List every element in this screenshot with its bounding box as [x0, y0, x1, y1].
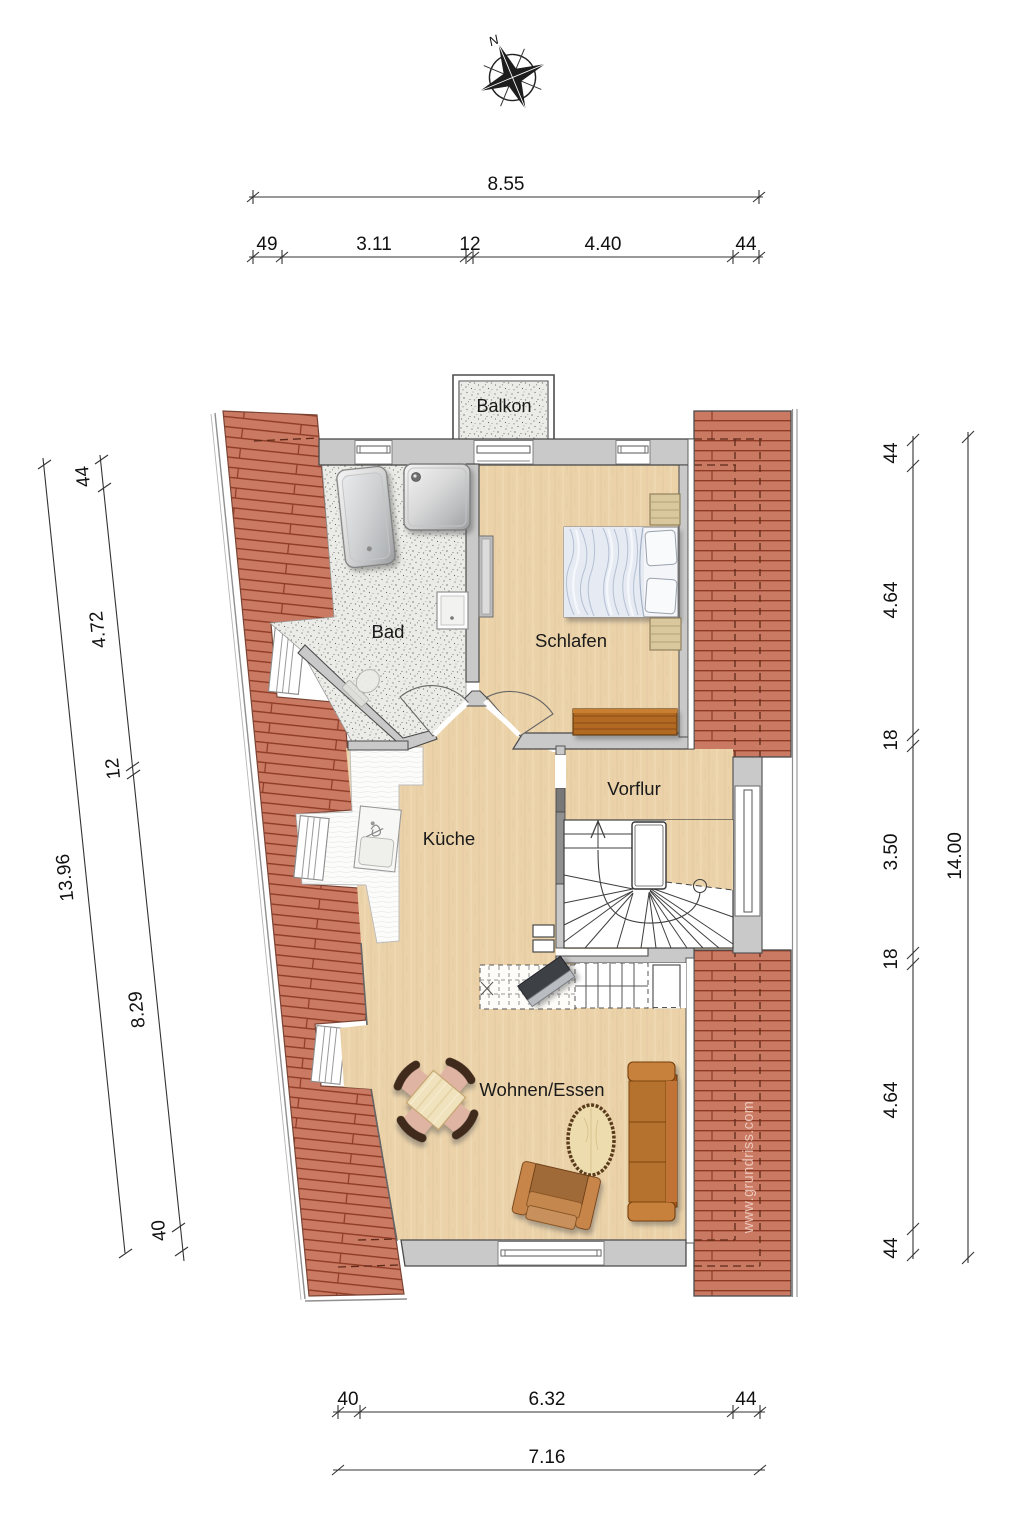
- svg-text:44: 44: [881, 1237, 902, 1259]
- svg-text:3.11: 3.11: [356, 234, 392, 255]
- svg-text:18: 18: [881, 729, 902, 750]
- svg-text:8.29: 8.29: [125, 990, 150, 1029]
- svg-text:44: 44: [72, 465, 95, 489]
- svg-text:12: 12: [459, 234, 480, 255]
- svg-text:Balkon: Balkon: [476, 396, 531, 416]
- svg-text:www.grundriss.com: www.grundriss.com: [741, 1101, 757, 1235]
- svg-text:6.32: 6.32: [529, 1389, 566, 1410]
- svg-text:4.64: 4.64: [881, 1081, 902, 1118]
- svg-text:44: 44: [881, 442, 902, 464]
- svg-text:Schlafen: Schlafen: [535, 630, 607, 651]
- svg-text:4.64: 4.64: [881, 581, 902, 618]
- svg-text:Vorflur: Vorflur: [607, 778, 660, 799]
- svg-text:18: 18: [881, 948, 902, 969]
- svg-text:14.00: 14.00: [945, 832, 966, 880]
- svg-text:44: 44: [735, 1389, 757, 1410]
- svg-text:40: 40: [148, 1219, 171, 1242]
- svg-text:Küche: Küche: [423, 828, 475, 849]
- svg-text:4.40: 4.40: [585, 234, 622, 255]
- svg-text:49: 49: [256, 234, 277, 255]
- svg-text:8.55: 8.55: [488, 174, 525, 195]
- svg-text:Wohnen/Essen: Wohnen/Essen: [479, 1079, 604, 1100]
- svg-text:12: 12: [102, 757, 125, 780]
- svg-text:Bad: Bad: [372, 621, 405, 642]
- svg-text:7.16: 7.16: [529, 1447, 566, 1468]
- svg-text:4.72: 4.72: [86, 610, 111, 649]
- svg-text:44: 44: [735, 234, 757, 255]
- svg-text:3.50: 3.50: [881, 834, 902, 871]
- svg-text:40: 40: [337, 1389, 358, 1410]
